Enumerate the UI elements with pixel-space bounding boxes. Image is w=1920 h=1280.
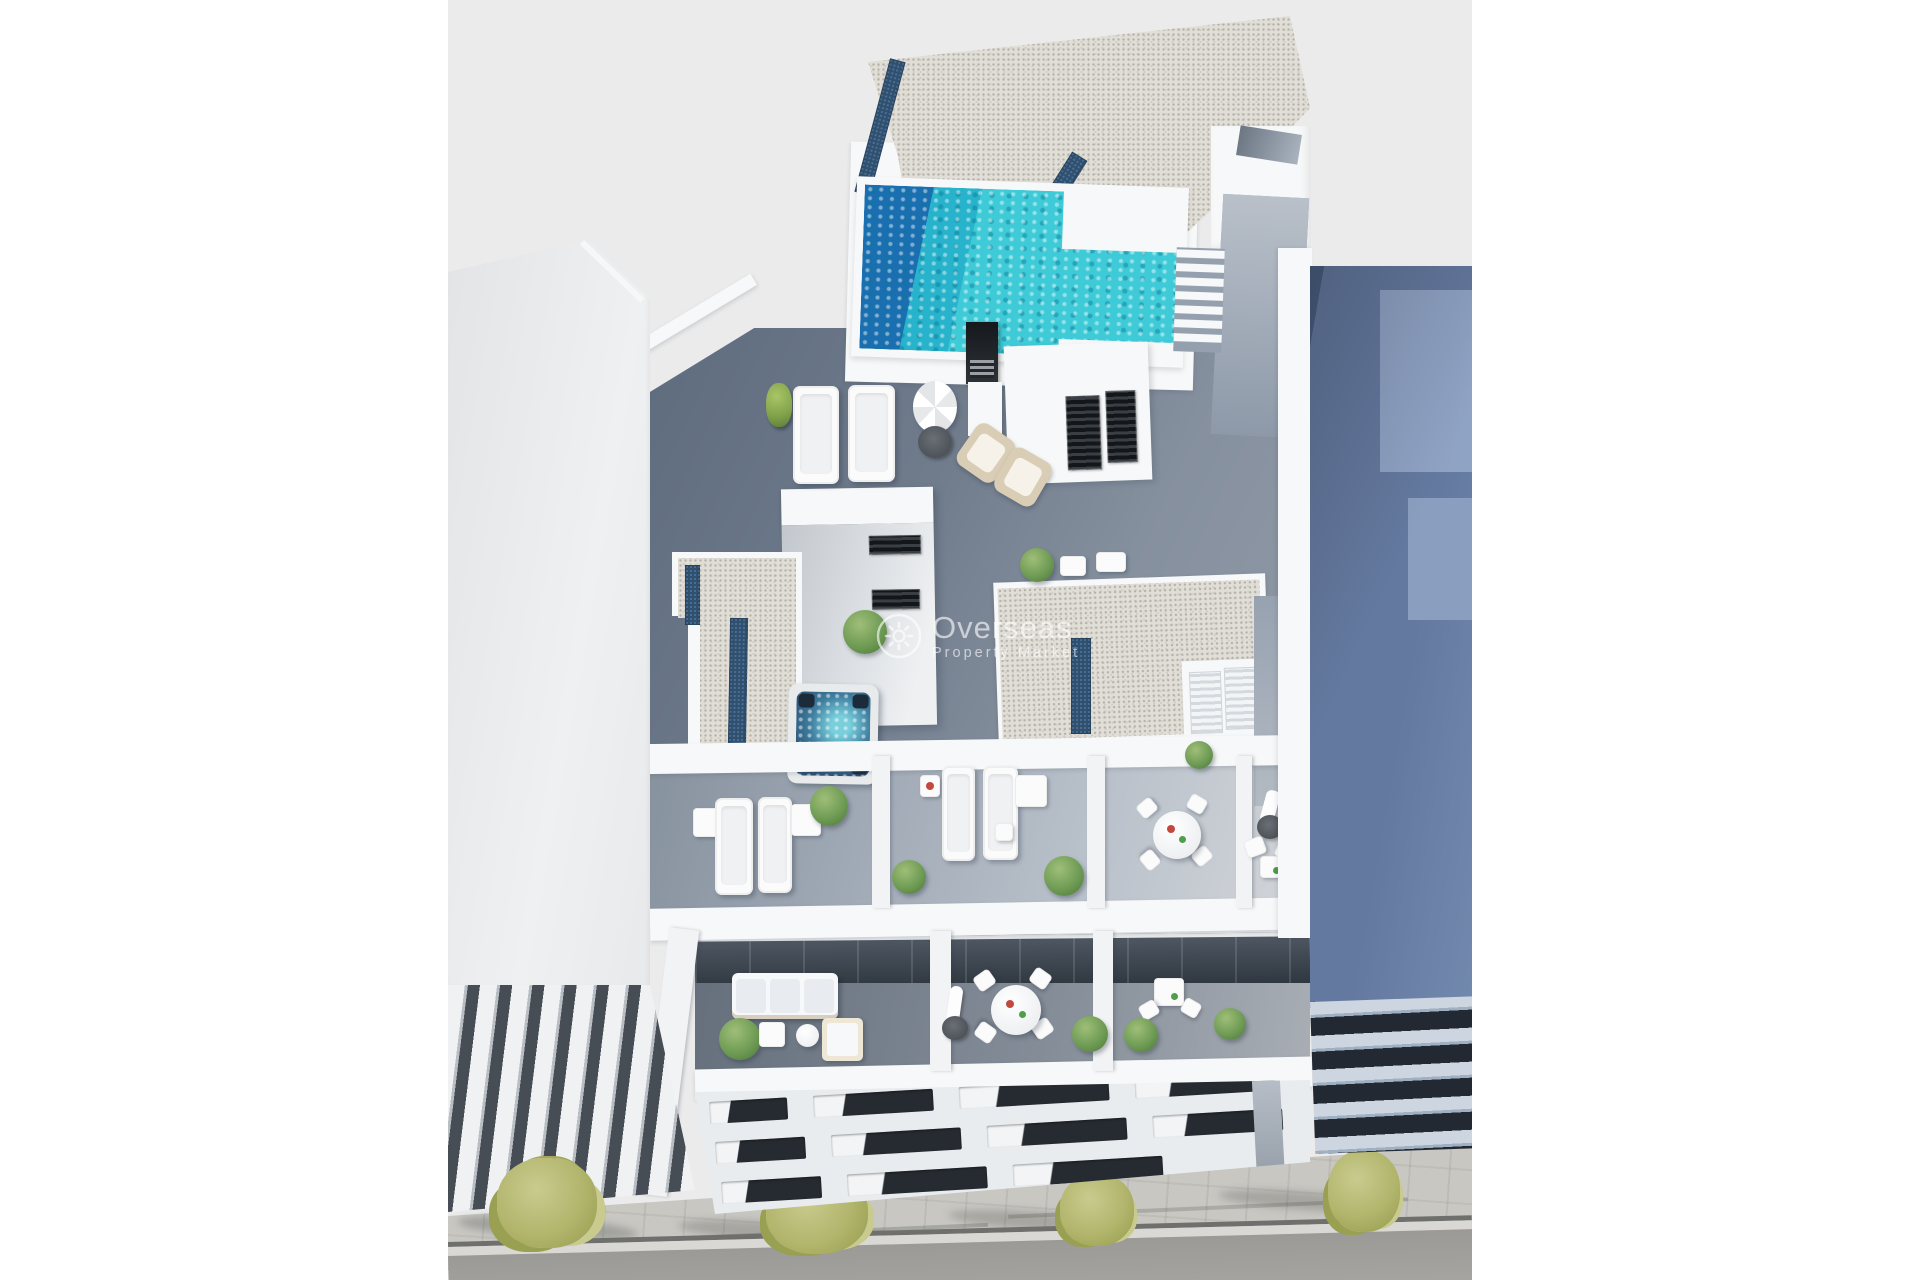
left-neighbor-building	[448, 238, 652, 988]
side-table-s2	[920, 775, 940, 797]
sofa	[732, 973, 838, 1019]
stair-step	[1176, 263, 1224, 273]
planter-balcony-r3	[1214, 1008, 1246, 1040]
sun-logo-icon	[876, 613, 922, 659]
tower-louver-window-upper	[869, 535, 921, 555]
chimney-vent	[966, 322, 998, 384]
daybed-bench	[822, 1018, 863, 1061]
street-tree-3	[1060, 1174, 1134, 1246]
tray-table-s2	[995, 823, 1013, 841]
street-tree-1	[497, 1158, 597, 1248]
planter-s2-left	[892, 860, 926, 894]
chair-s2	[1015, 775, 1047, 807]
parasol-base	[918, 426, 952, 458]
facade-slot	[715, 1137, 806, 1164]
cypress-planter	[766, 383, 792, 427]
divider-wall-rooftop-3	[1236, 756, 1252, 908]
page: Overseas Property Market	[0, 0, 1920, 1280]
equipment-louver-window-2	[1105, 390, 1137, 463]
stair-step	[1175, 305, 1223, 315]
street-tree-4	[1328, 1150, 1400, 1232]
stair-step	[1174, 333, 1222, 343]
facade-slot	[831, 1127, 962, 1157]
roof-access-box	[1182, 659, 1263, 748]
planter-s2-right	[1044, 856, 1084, 896]
sun-lounger-s2-a	[942, 766, 975, 861]
watermark-text: Overseas Property Market	[932, 612, 1080, 660]
facade-slot	[721, 1176, 822, 1204]
louver-shutter-1	[1189, 671, 1223, 734]
tower-roof-slab	[781, 487, 934, 526]
watermark-tagline: Property Market	[932, 646, 1080, 661]
jacuzzi-seat	[798, 693, 814, 707]
bistro-table-right	[1154, 978, 1184, 1006]
divider-wall-rooftop-2	[1087, 756, 1105, 908]
sofa-cushion	[736, 979, 766, 1013]
sun-lounger-s1-b	[758, 797, 792, 893]
vent-grille	[970, 360, 994, 378]
render-canvas: Overseas Property Market	[448, 0, 1472, 1280]
main-building-right-parapet	[1278, 248, 1312, 938]
louver-shutter-2	[1224, 667, 1258, 730]
jacuzzi-seat	[852, 694, 868, 708]
stair-step	[1176, 249, 1224, 259]
dining-table-s3	[1153, 811, 1201, 859]
divider-wall-rooftop-1	[872, 756, 890, 908]
dining-table-balcony	[991, 985, 1041, 1035]
watermark: Overseas Property Market	[876, 612, 1080, 660]
sun-lounger-upper-1	[793, 386, 839, 484]
boxwood-planter-s3	[1185, 741, 1213, 769]
stair-step	[1175, 291, 1223, 301]
terrace-chair-small-2	[1096, 552, 1126, 572]
planter-balcony-left	[719, 1018, 761, 1060]
sofa-cushion	[804, 979, 834, 1013]
tower-louver-window-lower	[872, 589, 920, 610]
facade-slot	[847, 1166, 988, 1196]
coffee-table-square	[759, 1022, 785, 1047]
terrace-chair-small-1	[1060, 556, 1086, 576]
planter-balcony-r1	[1072, 1016, 1108, 1052]
planter-s1	[810, 786, 848, 826]
skylight-strip-left-2	[728, 618, 748, 746]
facade-slot	[813, 1089, 934, 1118]
stair-step	[1176, 277, 1224, 287]
right-building-facade	[1310, 996, 1472, 1154]
skylight-strip-left-1	[685, 565, 700, 625]
right-wall-shade	[1310, 266, 1472, 1008]
watermark-brand: Overseas	[932, 612, 1080, 644]
sun-lounger-s1-a	[715, 798, 753, 895]
facade-slot	[987, 1118, 1128, 1148]
sun-lounger-s2-b	[983, 766, 1018, 860]
coffee-table-round	[796, 1024, 819, 1047]
daybed-cushion	[827, 1023, 858, 1056]
facade-slot	[709, 1097, 788, 1124]
sun-lounger-upper-2	[848, 385, 895, 482]
planter-gravel-edge	[1020, 548, 1054, 582]
right-neighbor-building	[1310, 266, 1472, 1008]
sofa-cushion	[770, 979, 800, 1013]
parasol-base-balcony	[942, 1016, 968, 1040]
stairs	[1173, 247, 1225, 353]
stair-step	[1174, 319, 1222, 329]
planter-balcony-r2	[1124, 1018, 1158, 1052]
equipment-louver-window-1	[1065, 395, 1102, 470]
